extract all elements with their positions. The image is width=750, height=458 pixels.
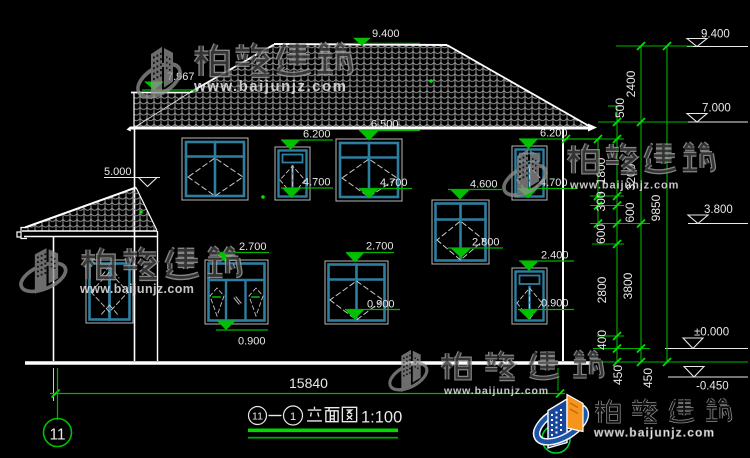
svg-text:9850: 9850 [649, 194, 663, 221]
svg-text:450: 450 [641, 368, 655, 388]
svg-text:5.000: 5.000 [104, 166, 132, 178]
svg-text:±0.000: ±0.000 [694, 327, 729, 339]
svg-text:1:100: 1:100 [361, 409, 402, 427]
svg-text:300: 300 [594, 191, 608, 211]
svg-text:1: 1 [290, 411, 296, 423]
svg-text:11: 11 [252, 411, 263, 423]
svg-text:2.700: 2.700 [239, 241, 267, 253]
svg-text:2.400: 2.400 [541, 250, 569, 262]
svg-text:0.900: 0.900 [367, 299, 395, 311]
svg-text:0.900: 0.900 [541, 298, 569, 310]
svg-text:3800: 3800 [621, 272, 635, 299]
svg-text:2.800: 2.800 [472, 237, 500, 249]
svg-text:www.baijunjz.com: www.baijunjz.com [79, 282, 194, 296]
svg-text:4.700: 4.700 [380, 177, 408, 189]
svg-text:6.200: 6.200 [303, 129, 331, 141]
svg-text:400: 400 [595, 330, 609, 350]
svg-text:6.500: 6.500 [371, 119, 399, 131]
svg-text:600: 600 [594, 224, 608, 244]
svg-text:www.baijunjz.com: www.baijunjz.com [443, 385, 549, 397]
svg-text:11: 11 [49, 427, 65, 444]
svg-text:15840: 15840 [289, 375, 328, 391]
svg-text:www.baijunjz.com: www.baijunjz.com [569, 180, 679, 192]
svg-text:www.baijunjz.com: www.baijunjz.com [193, 78, 347, 95]
svg-text:2.700: 2.700 [366, 241, 394, 253]
svg-text:6.200: 6.200 [540, 128, 568, 140]
svg-text:2400: 2400 [624, 70, 638, 97]
svg-text:500: 500 [613, 98, 627, 118]
svg-text:2800: 2800 [595, 276, 609, 303]
svg-text:7.000: 7.000 [702, 103, 731, 115]
svg-text:9.400: 9.400 [701, 29, 730, 41]
svg-text:-0.450: -0.450 [696, 381, 729, 393]
svg-text:4.700: 4.700 [303, 177, 331, 189]
svg-text:450: 450 [611, 365, 625, 385]
svg-text:0.900: 0.900 [238, 336, 266, 348]
svg-text:600: 600 [623, 202, 637, 222]
svg-text:3.800: 3.800 [704, 204, 733, 216]
svg-text:9.400: 9.400 [372, 28, 400, 40]
svg-text:4.600: 4.600 [470, 179, 498, 191]
svg-text:www.baijunjz.com: www.baijunjz.com [593, 426, 715, 440]
